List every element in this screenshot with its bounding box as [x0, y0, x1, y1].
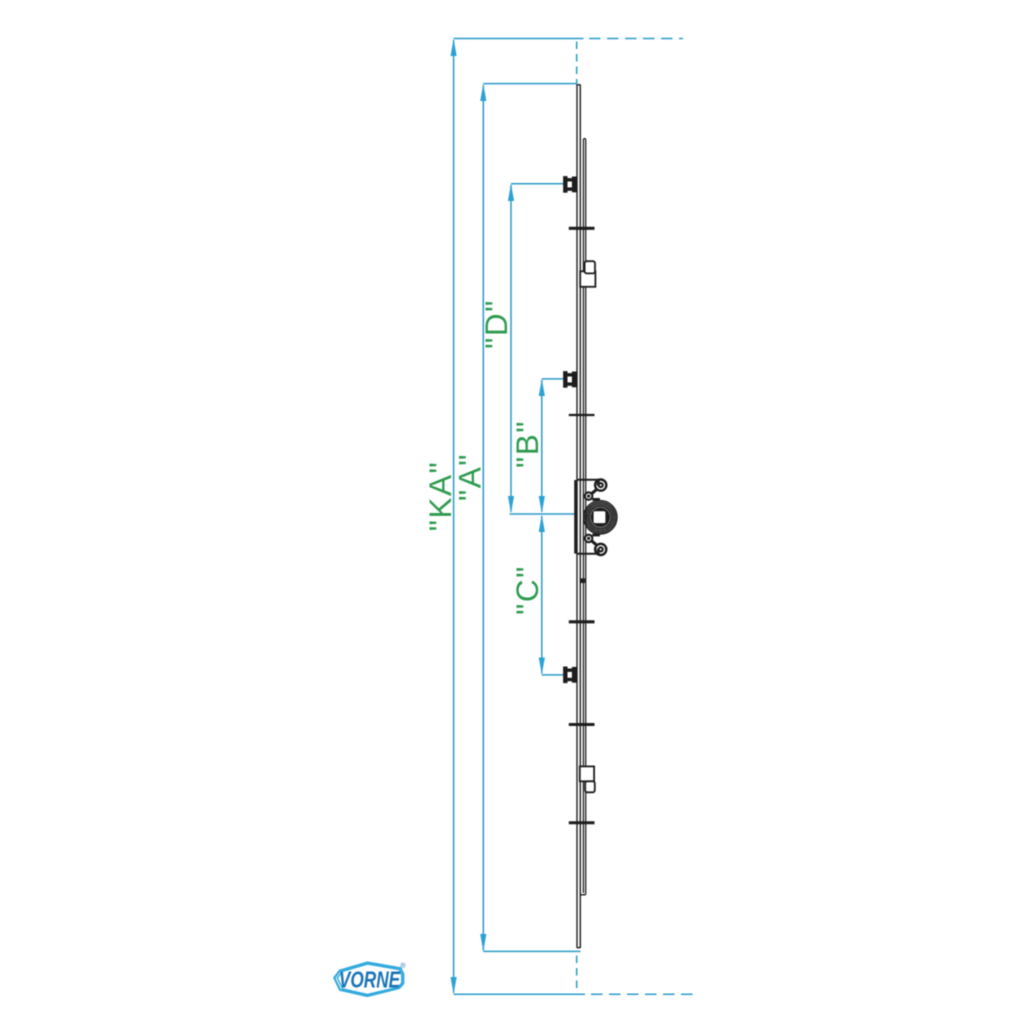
svg-text:"C": "C"	[509, 565, 545, 615]
svg-text:"B": "B"	[509, 420, 545, 468]
svg-text:®: ®	[400, 962, 406, 970]
svg-text:VORNE: VORNE	[339, 968, 402, 993]
svg-text:"A": "A"	[452, 453, 488, 501]
svg-text:"D": "D"	[478, 299, 514, 349]
